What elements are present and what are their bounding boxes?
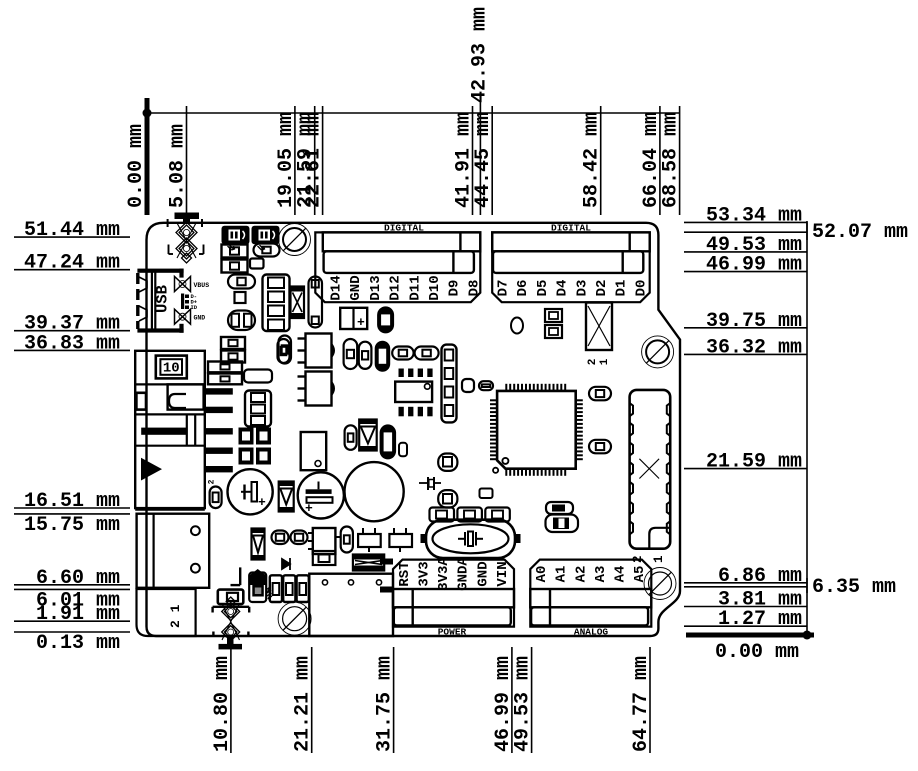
svg-text:2: 2 xyxy=(208,479,217,484)
svg-text:36.32 mm: 36.32 mm xyxy=(706,336,802,359)
svg-text:1: 1 xyxy=(652,555,666,563)
svg-text:A0: A0 xyxy=(534,566,550,583)
svg-text:D7: D7 xyxy=(496,280,512,297)
svg-text:A2: A2 xyxy=(573,566,589,583)
svg-text:44.45 mm: 44.45 mm xyxy=(472,112,495,208)
svg-text:46.99 mm: 46.99 mm xyxy=(706,254,802,277)
svg-text:GND: GND xyxy=(475,561,491,586)
svg-text:6.35 mm: 6.35 mm xyxy=(812,576,896,599)
svg-text:16.51 mm: 16.51 mm xyxy=(24,490,120,513)
svg-text:DIGITAL: DIGITAL xyxy=(551,223,591,234)
svg-text:53.34 mm: 53.34 mm xyxy=(706,204,802,227)
svg-text:ID: ID xyxy=(191,304,198,311)
svg-text:ANALOG: ANALOG xyxy=(574,627,609,638)
svg-text:2: 2 xyxy=(631,555,645,563)
svg-text:31.75 mm: 31.75 mm xyxy=(374,656,397,752)
svg-text:D6: D6 xyxy=(515,280,531,297)
svg-text:0.00 mm: 0.00 mm xyxy=(125,124,148,208)
svg-text:3V3A: 3V3A xyxy=(436,557,452,591)
svg-text:D13: D13 xyxy=(368,275,384,300)
svg-text:D9: D9 xyxy=(447,280,463,297)
svg-text:52.07 mm: 52.07 mm xyxy=(812,221,908,244)
svg-text:64.77 mm: 64.77 mm xyxy=(630,656,653,752)
svg-text:49.53 mm: 49.53 mm xyxy=(512,656,535,752)
svg-text:10.80 mm: 10.80 mm xyxy=(211,656,234,752)
svg-text:D3: D3 xyxy=(574,280,590,297)
svg-text:21.21 mm: 21.21 mm xyxy=(292,656,315,752)
svg-text:1.91 mm: 1.91 mm xyxy=(36,603,120,626)
svg-text:6.60 mm: 6.60 mm xyxy=(36,567,120,590)
svg-text:D2: D2 xyxy=(594,280,610,297)
svg-text:2: 2 xyxy=(587,359,599,366)
svg-text:+: + xyxy=(305,501,313,516)
svg-text:DIGITAL: DIGITAL xyxy=(384,223,424,234)
svg-text:0.13 mm: 0.13 mm xyxy=(36,632,120,655)
svg-text:GND: GND xyxy=(194,315,206,322)
svg-text:D11: D11 xyxy=(407,275,423,300)
svg-text:POWER: POWER xyxy=(438,627,467,638)
svg-text:D8: D8 xyxy=(466,280,482,297)
svg-text:3V3: 3V3 xyxy=(417,561,433,586)
svg-text:51.44 mm: 51.44 mm xyxy=(24,219,120,242)
svg-text:1.27 mm: 1.27 mm xyxy=(718,608,802,631)
svg-text:42.93 mm: 42.93 mm xyxy=(468,7,491,103)
svg-text:58.42 mm: 58.42 mm xyxy=(581,112,604,208)
svg-text:VIN: VIN xyxy=(495,561,511,586)
svg-text:A3: A3 xyxy=(593,566,609,583)
svg-text:D4: D4 xyxy=(555,280,571,297)
svg-text:2 1: 2 1 xyxy=(168,604,183,628)
svg-text:10: 10 xyxy=(163,361,180,377)
svg-text:USB: USB xyxy=(154,285,172,313)
svg-text:5.08 mm: 5.08 mm xyxy=(167,124,190,208)
svg-text:39.75 mm: 39.75 mm xyxy=(706,310,802,333)
svg-text:1: 1 xyxy=(599,358,611,365)
svg-text:68.58 mm: 68.58 mm xyxy=(660,112,683,208)
svg-text:A5: A5 xyxy=(632,566,648,583)
svg-text:GNDA: GNDA xyxy=(456,557,472,591)
svg-text:0.00 mm: 0.00 mm xyxy=(715,641,799,664)
svg-text:D0: D0 xyxy=(633,280,649,297)
svg-text:A4: A4 xyxy=(613,566,629,583)
svg-text:A1: A1 xyxy=(554,566,570,583)
svg-text:47.24 mm: 47.24 mm xyxy=(24,252,120,275)
svg-text:D14: D14 xyxy=(329,275,345,300)
svg-text:GND: GND xyxy=(348,275,364,300)
svg-text:+: + xyxy=(258,495,266,510)
svg-text:D5: D5 xyxy=(535,280,551,297)
svg-text:D1: D1 xyxy=(614,280,630,297)
svg-text:15.75 mm: 15.75 mm xyxy=(24,514,120,537)
svg-text:D12: D12 xyxy=(388,275,404,300)
svg-text:6.86 mm: 6.86 mm xyxy=(718,565,802,588)
svg-text:D10: D10 xyxy=(427,275,443,300)
svg-text:36.83 mm: 36.83 mm xyxy=(24,332,120,355)
svg-text:22.61 mm: 22.61 mm xyxy=(303,112,326,208)
svg-text:+: + xyxy=(357,315,365,330)
svg-text:21.59 mm: 21.59 mm xyxy=(706,451,802,474)
svg-text:VBUS: VBUS xyxy=(194,282,210,289)
svg-text:RST: RST xyxy=(397,561,413,586)
